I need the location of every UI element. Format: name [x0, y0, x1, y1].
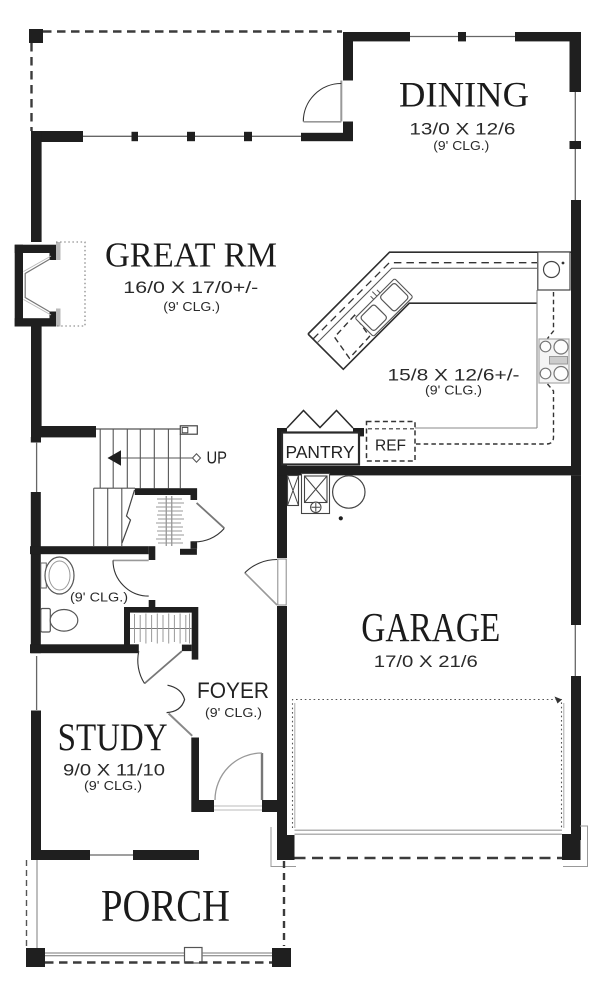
svg-text:(9' CLG.): (9' CLG.)	[425, 383, 482, 398]
svg-text:PANTRY: PANTRY	[286, 442, 355, 462]
svg-text:GARAGE: GARAGE	[361, 604, 500, 650]
svg-text:REF: REF	[375, 438, 406, 455]
svg-text:DINING: DINING	[399, 74, 529, 114]
svg-text:STUDY: STUDY	[58, 715, 168, 759]
svg-text:13/0 X 12/6: 13/0 X 12/6	[409, 120, 515, 139]
svg-text:(9' CLG.): (9' CLG.)	[70, 590, 128, 605]
svg-text:PORCH: PORCH	[101, 881, 230, 931]
svg-text:UP: UP	[207, 448, 228, 468]
svg-text:17/0 X 21/6: 17/0 X 21/6	[374, 652, 478, 671]
svg-text:GREAT RM: GREAT RM	[105, 236, 277, 275]
svg-text:9/0 X 11/10: 9/0 X 11/10	[63, 761, 165, 780]
svg-text:(9' CLG.): (9' CLG.)	[163, 299, 220, 314]
svg-text:FOYER: FOYER	[197, 678, 269, 703]
svg-text:(9' CLG.): (9' CLG.)	[84, 778, 142, 793]
svg-text:16/0 X 17/0+/-: 16/0 X 17/0+/-	[123, 279, 258, 297]
svg-text:(9' CLG.): (9' CLG.)	[433, 138, 489, 153]
svg-text:(9' CLG.): (9' CLG.)	[205, 705, 262, 720]
